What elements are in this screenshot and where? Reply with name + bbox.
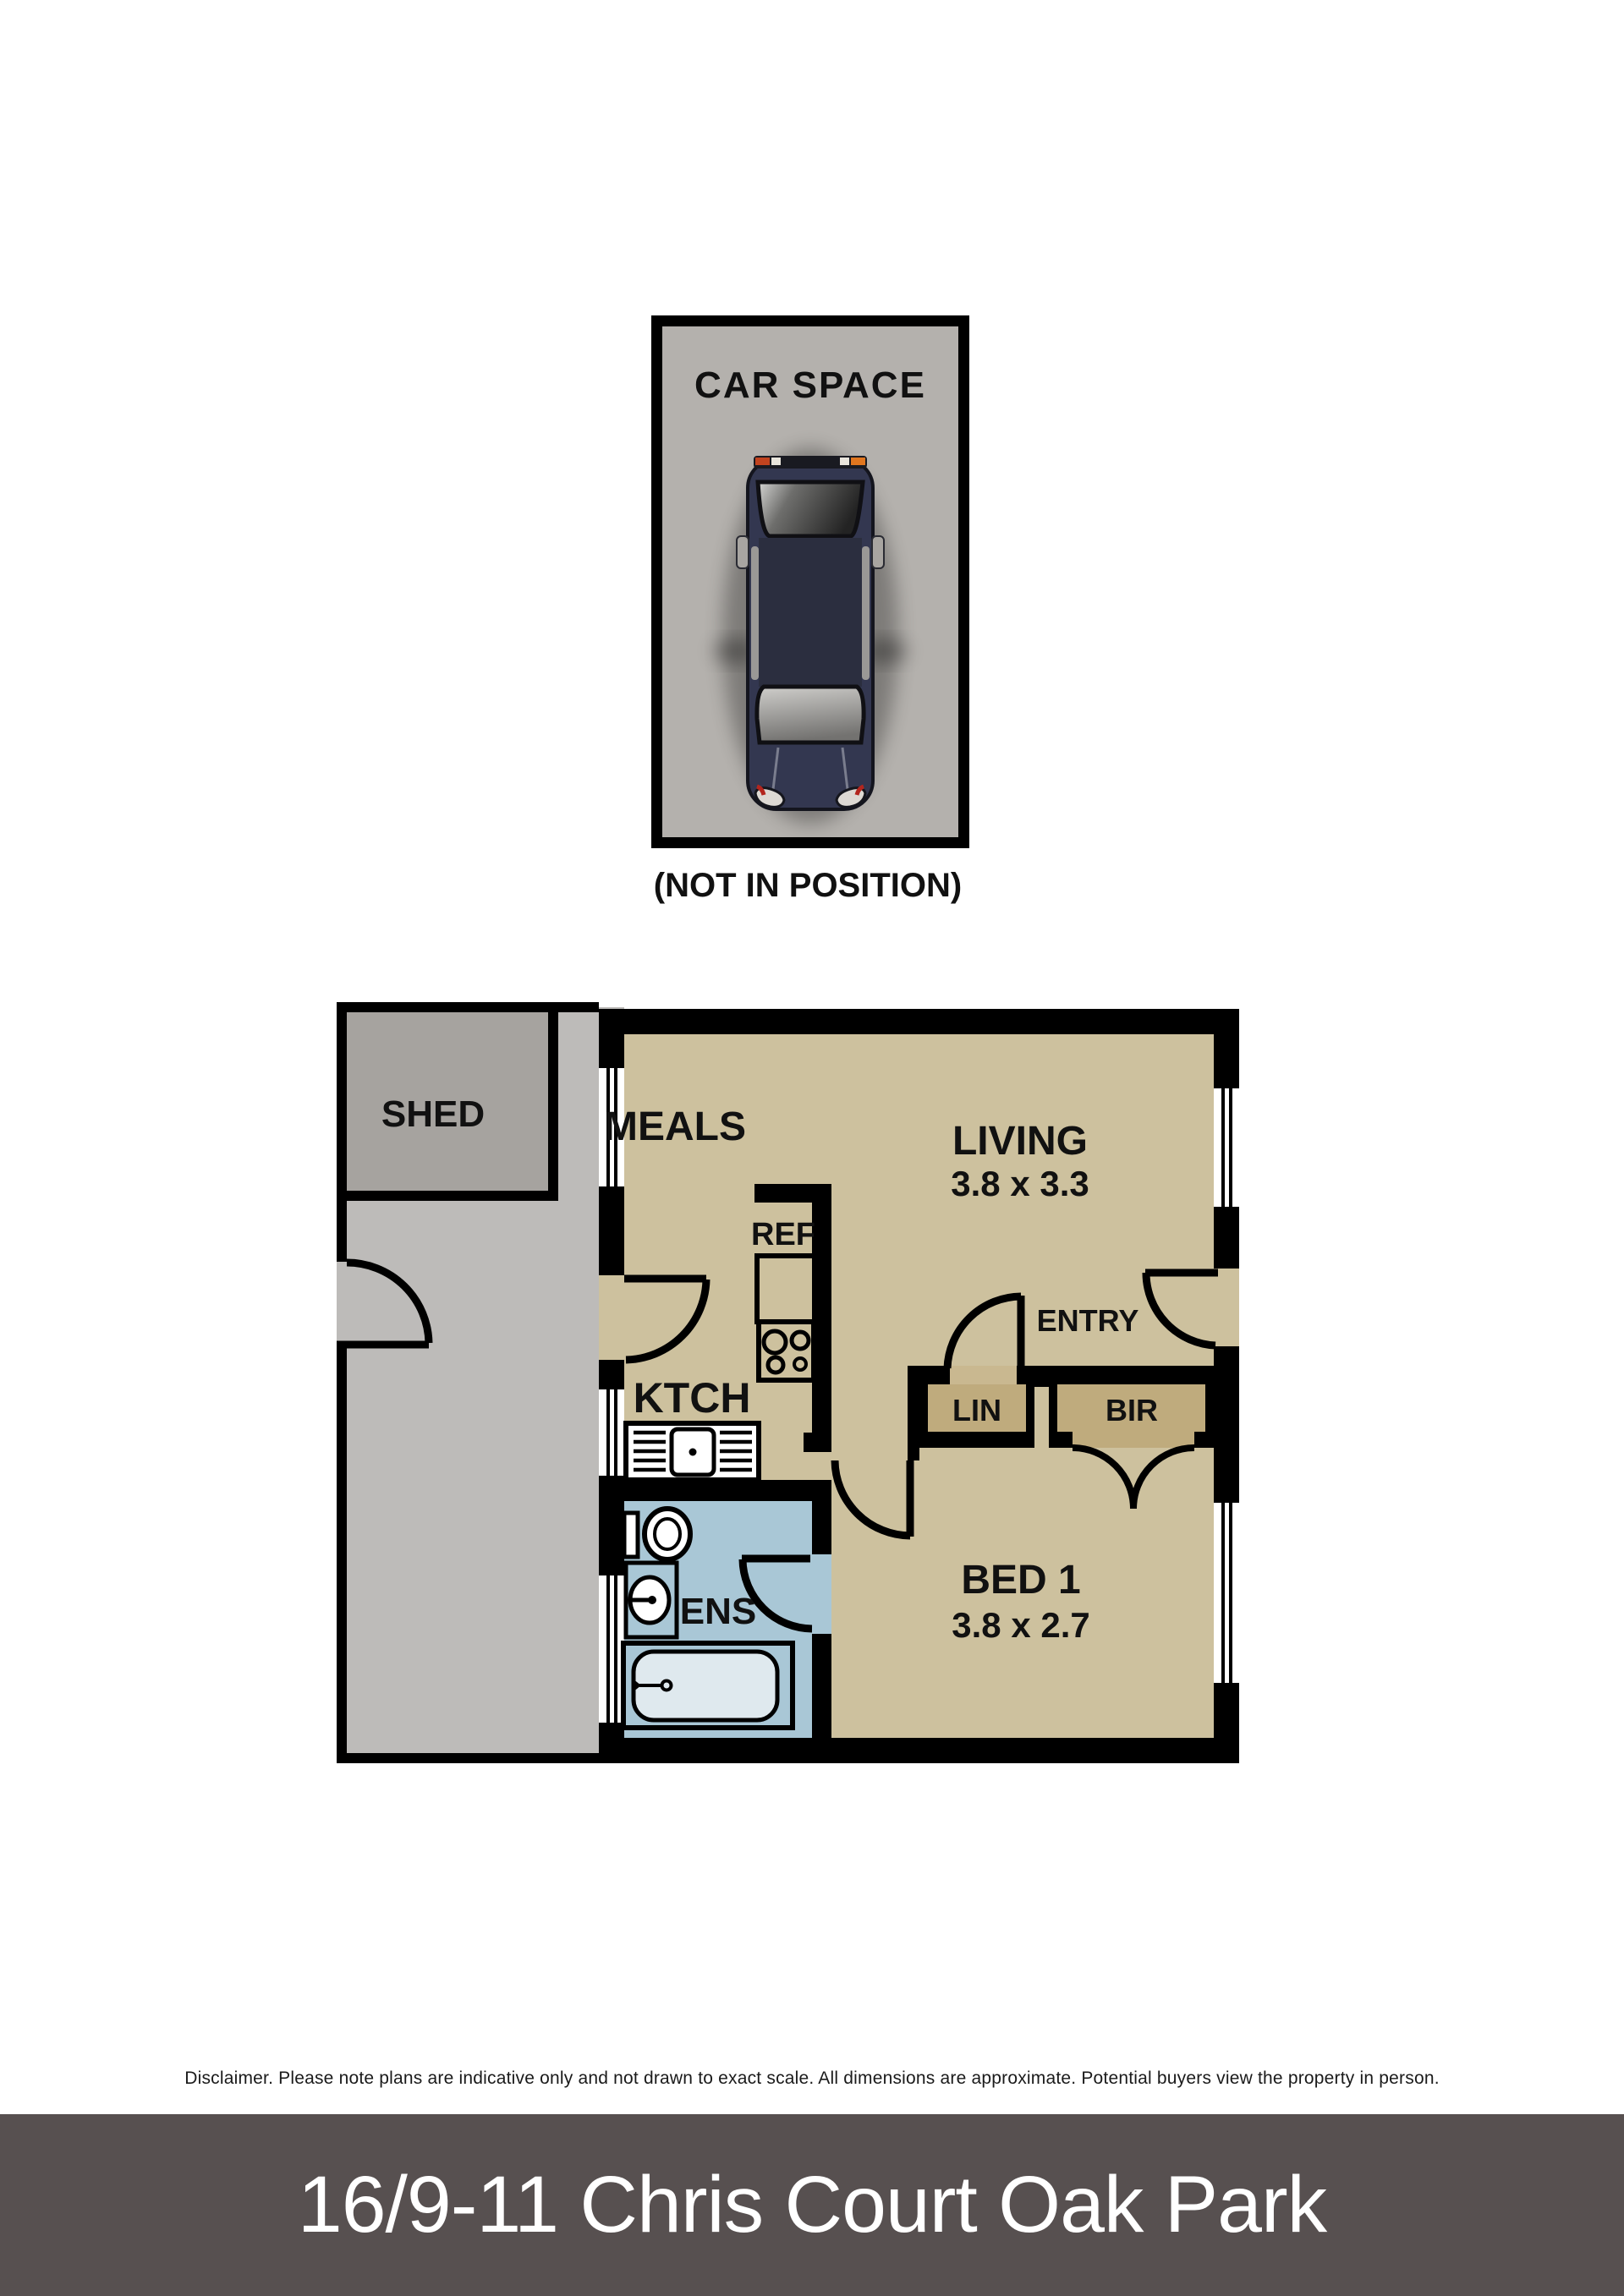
- outdoor-door-gap: [337, 1262, 347, 1345]
- footer-bar: 16/9-11 Chris Court Oak Park: [0, 2114, 1624, 2296]
- floorplan-canvas: CAR SPACE: [0, 0, 1624, 2114]
- bed1-dims: 3.8 x 2.7: [952, 1605, 1089, 1645]
- living-label: LIVING: [952, 1119, 1088, 1164]
- ktch-label: KTCH: [634, 1374, 751, 1422]
- floorplan: SHED MEALS LIVING 3.8 x 3.3 REF ENTRY KT…: [337, 1002, 1239, 1763]
- living-window: [1214, 1088, 1239, 1207]
- bathtub-icon: [623, 1643, 793, 1728]
- living-dims: 3.8 x 3.3: [951, 1164, 1089, 1203]
- entry-label: ENTRY: [1037, 1303, 1139, 1338]
- toilet-icon: [624, 1509, 690, 1559]
- ens-window: [599, 1575, 624, 1723]
- lin-label: LIN: [952, 1393, 1001, 1427]
- ref-label: REF: [751, 1217, 815, 1252]
- bed1-label: BED 1: [961, 1558, 1080, 1603]
- fridge-icon: [757, 1256, 815, 1322]
- bed1-window: [1214, 1503, 1239, 1683]
- car-space-label: CAR SPACE: [694, 364, 926, 406]
- entry-door-gap: [1214, 1269, 1239, 1346]
- disclaimer-text: Disclaimer. Please note plans are indica…: [0, 2069, 1624, 2089]
- ens-label: ENS: [680, 1591, 756, 1632]
- ktch-door-gap: [599, 1275, 624, 1360]
- sink-icon: [626, 1423, 759, 1480]
- shed-label: SHED: [381, 1093, 485, 1135]
- ktch-window: [599, 1389, 624, 1476]
- meals-label: MEALS: [604, 1104, 746, 1149]
- floorplan-page: { "carspace": { "title": "CAR SPACE", "n…: [0, 0, 1624, 2296]
- car-space-diagram: CAR SPACE: [651, 315, 969, 904]
- ens-door-gap: [812, 1554, 831, 1634]
- bir-label: BIR: [1106, 1393, 1158, 1427]
- stove-icon: [759, 1322, 814, 1380]
- car-space-note: (NOT IN POSITION): [654, 867, 962, 904]
- footer-address: 16/9-11 Chris Court Oak Park: [298, 2159, 1326, 2251]
